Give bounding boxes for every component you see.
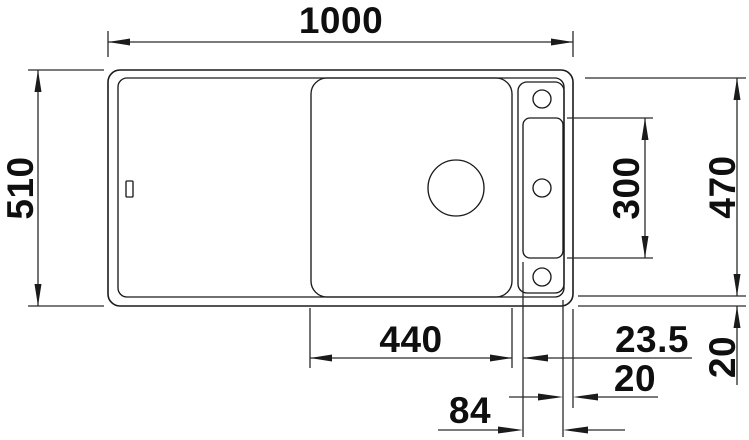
tap-ledge-recess: [523, 118, 563, 258]
arrowhead-right: [490, 355, 512, 362]
drain-hole: [428, 160, 484, 216]
arrowhead-left: [310, 355, 332, 362]
arrowhead-bottom: [35, 284, 42, 306]
arrowhead-left: [523, 355, 548, 362]
dim-bowl-to-recess: 23.5: [523, 319, 692, 362]
dim-bowl-width-label: 440: [379, 319, 442, 360]
board-handle-slot: [126, 181, 133, 197]
dim-overall-depth-label: 510: [0, 156, 41, 219]
arrowhead-right-pointing: [498, 427, 523, 434]
tap-hole-bottom: [533, 268, 551, 286]
dim-recess-length: 300: [567, 118, 653, 258]
dim-overall-width: 1000: [108, 0, 573, 57]
sink-dimension-diagram: 1000 510 470 20 300 440: [0, 0, 749, 440]
sink-outer-edge: [108, 70, 573, 306]
arrowhead-right: [551, 39, 573, 46]
dim-overall-depth: 510: [0, 70, 104, 306]
arrowhead-left: [108, 39, 130, 46]
arrowhead-up: [734, 306, 741, 328]
extension-lines: [563, 300, 573, 437]
arrowhead-left-pointing: [563, 427, 588, 434]
dim-right-depth-label: 470: [702, 155, 743, 218]
arrowhead-top: [35, 70, 42, 92]
arrowhead-top: [734, 78, 741, 100]
arrowhead-top: [642, 118, 649, 140]
arrowhead-bottom: [734, 274, 741, 296]
sink-rim: [118, 78, 564, 297]
dim-bowl-to-recess-label: 23.5: [615, 319, 689, 360]
arrowhead-left-pointing: [573, 394, 598, 401]
tap-hole-top: [533, 90, 551, 108]
tap-hole-middle: [533, 179, 551, 197]
sink-body: [108, 70, 573, 306]
arrowhead-bottom: [642, 236, 649, 258]
dim-recess-width-label: 84: [449, 390, 491, 431]
dim-recess-to-edge-label: 20: [614, 358, 656, 399]
dim-recess-length-label: 300: [606, 156, 647, 219]
dim-right-depth: 470: [578, 78, 746, 296]
main-bowl: [311, 78, 512, 297]
arrowhead-right-pointing: [538, 394, 563, 401]
technical-drawing-page: 1000 510 470 20 300 440: [0, 0, 749, 440]
dim-bottom-rim-label: 20: [702, 336, 743, 378]
dim-overall-width-label: 1000: [299, 0, 383, 41]
tap-ledge: [518, 82, 564, 293]
